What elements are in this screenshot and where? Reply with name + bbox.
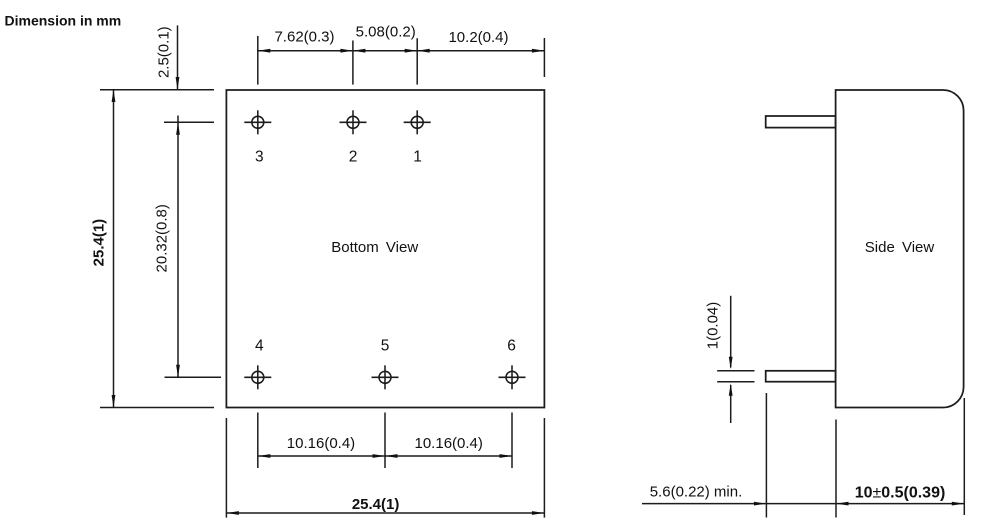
svg-text:10.16(0.4): 10.16(0.4) <box>415 435 483 452</box>
svg-text:5: 5 <box>381 338 390 355</box>
svg-text:2: 2 <box>349 149 358 166</box>
svg-text:3: 3 <box>255 148 264 165</box>
svg-text:10.16(0.4): 10.16(0.4) <box>287 435 355 452</box>
svg-text:1(0.04): 1(0.04) <box>705 302 722 350</box>
svg-text:25.4(1): 25.4(1) <box>352 496 400 513</box>
svg-text:20.32(0.8): 20.32(0.8) <box>153 204 170 272</box>
svg-text:5.6(0.22) min.: 5.6(0.22) min. <box>650 484 743 501</box>
svg-text:2.5(0.1): 2.5(0.1) <box>156 26 173 78</box>
svg-text:10±0.5(0.39): 10±0.5(0.39) <box>855 485 946 502</box>
svg-text:5.08(0.2): 5.08(0.2) <box>356 24 416 41</box>
svg-text:6: 6 <box>507 338 516 355</box>
svg-text:4: 4 <box>255 338 264 355</box>
svg-text:Side View: Side View <box>865 239 935 256</box>
svg-text:7.62(0.3): 7.62(0.3) <box>274 29 334 46</box>
svg-text:Bottom View: Bottom View <box>331 239 418 256</box>
svg-text:1: 1 <box>413 149 422 166</box>
svg-text:25.4(1): 25.4(1) <box>91 219 108 267</box>
svg-text:Dimension in mm: Dimension in mm <box>5 12 122 28</box>
svg-text:10.2(0.4): 10.2(0.4) <box>448 29 508 46</box>
